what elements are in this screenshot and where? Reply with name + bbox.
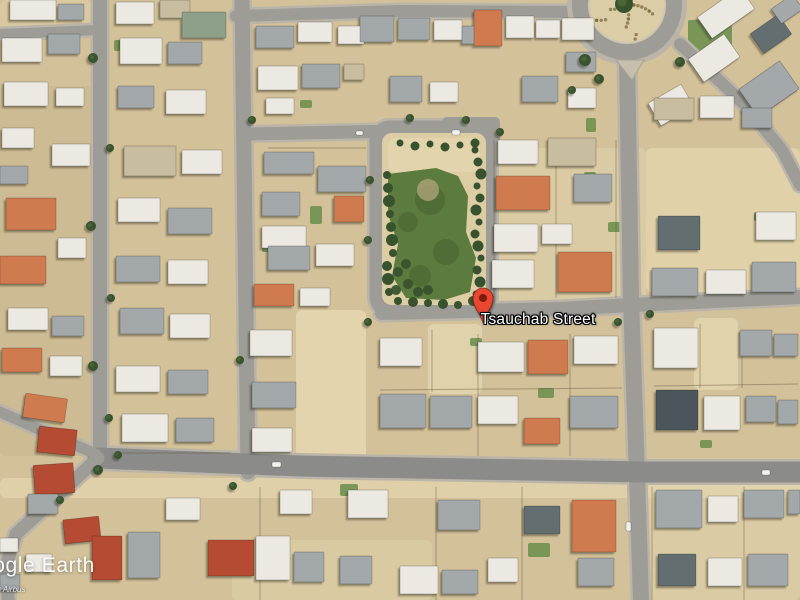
house-roof xyxy=(558,252,612,292)
house-roof xyxy=(294,552,324,582)
house-roof xyxy=(56,88,84,106)
house-roof xyxy=(254,284,294,306)
house-roof xyxy=(360,16,394,42)
house-roof xyxy=(37,426,78,456)
house-roof xyxy=(118,86,154,108)
house-roof xyxy=(704,396,740,430)
house-roof xyxy=(708,496,738,522)
satellite-map[interactable] xyxy=(0,0,800,600)
house-roof xyxy=(348,490,388,518)
house-roof xyxy=(302,64,340,88)
house-roof xyxy=(168,370,208,394)
house-roof xyxy=(748,554,788,586)
house-roof xyxy=(166,90,206,114)
house-roof xyxy=(536,20,560,38)
house-roof xyxy=(168,208,212,234)
house-roof xyxy=(430,396,472,428)
house-roof xyxy=(262,192,300,216)
house-roof xyxy=(2,38,42,62)
house-roof xyxy=(478,342,524,372)
house-roof xyxy=(524,418,560,444)
house-roof xyxy=(654,328,698,368)
house-roof xyxy=(120,38,162,64)
house-roof xyxy=(570,396,618,428)
car xyxy=(762,470,770,475)
house-roof xyxy=(124,146,176,176)
house-roof xyxy=(4,82,48,106)
house-roof xyxy=(700,96,734,118)
house-roof xyxy=(542,224,572,244)
house-roof xyxy=(746,396,776,422)
house-roof xyxy=(708,558,742,586)
house-roof xyxy=(33,463,75,496)
house-roof xyxy=(494,224,538,252)
house-roof xyxy=(390,76,422,102)
house-roof xyxy=(478,396,518,424)
house-roof xyxy=(434,20,462,40)
house-roof xyxy=(182,12,226,38)
house-roof xyxy=(208,540,254,576)
house-roof xyxy=(528,340,568,374)
house-roof xyxy=(788,490,800,514)
house-roof xyxy=(318,166,366,192)
street xyxy=(236,11,568,16)
house-roof xyxy=(742,108,772,128)
house-roof xyxy=(128,532,160,578)
house-roof xyxy=(430,82,458,102)
house-roof xyxy=(116,2,154,24)
house-roof xyxy=(506,16,534,38)
car xyxy=(626,522,631,531)
park xyxy=(382,133,487,309)
house-roof xyxy=(380,338,422,366)
house-roof xyxy=(496,176,550,210)
house-roof xyxy=(400,566,438,594)
house-roof xyxy=(252,382,296,408)
house-roof xyxy=(166,498,200,520)
house-roof xyxy=(182,150,222,174)
house-roof xyxy=(256,26,294,48)
house-roof xyxy=(438,500,480,530)
house-roof xyxy=(118,198,160,222)
car xyxy=(356,131,363,135)
house-roof xyxy=(658,216,700,250)
house-roof xyxy=(280,490,312,514)
house-roof xyxy=(656,490,702,528)
house-roof xyxy=(256,536,290,580)
house-roof xyxy=(562,18,594,40)
house-roof xyxy=(122,414,168,442)
house-roof xyxy=(654,98,694,120)
house-roof xyxy=(574,336,618,364)
house-roof xyxy=(264,152,314,174)
house-roof xyxy=(442,570,478,594)
house-roof xyxy=(8,308,48,330)
house-roof xyxy=(10,0,56,20)
house-roof xyxy=(774,334,798,356)
house-roof xyxy=(316,244,354,266)
house-roof xyxy=(572,500,616,552)
house-roof xyxy=(488,558,518,582)
house-roof xyxy=(578,558,614,586)
house-roof xyxy=(58,4,84,20)
house-roof xyxy=(120,308,164,334)
house-roof xyxy=(268,246,310,270)
house-roof xyxy=(252,428,292,452)
house-roof xyxy=(652,268,698,296)
house-roof xyxy=(92,536,122,580)
house-roof xyxy=(492,260,534,288)
car xyxy=(452,130,460,135)
house-roof xyxy=(258,66,298,90)
house-roof xyxy=(706,270,746,294)
house-roof xyxy=(28,494,58,514)
house-roof xyxy=(168,260,208,284)
street xyxy=(242,0,248,472)
house-roof xyxy=(52,144,90,166)
house-roof xyxy=(0,538,18,552)
house-roof xyxy=(300,288,330,306)
house-roof xyxy=(756,212,796,240)
car xyxy=(272,462,281,467)
house-roof xyxy=(48,34,80,54)
house-roof xyxy=(170,314,210,338)
house-roof xyxy=(334,196,364,222)
house-roof xyxy=(398,18,430,40)
house-roof xyxy=(752,262,796,292)
house-roof xyxy=(298,22,332,42)
house-roof xyxy=(498,140,538,164)
house-roof xyxy=(340,556,372,584)
house-roof xyxy=(262,226,306,248)
house-roof xyxy=(250,330,292,356)
house-roof xyxy=(548,138,596,166)
satellite-view[interactable]: Tsauchab Street Google Earth © Airbus xyxy=(0,0,800,600)
house-roof xyxy=(168,42,202,64)
house-roof xyxy=(658,554,696,586)
house-roof xyxy=(116,256,160,282)
house-roof xyxy=(50,356,82,376)
house-roof xyxy=(0,256,46,284)
house-roof xyxy=(52,316,84,336)
house-roof xyxy=(6,198,56,230)
house-roof xyxy=(116,366,160,392)
house-roof xyxy=(58,238,86,258)
street xyxy=(0,30,98,34)
house-roof xyxy=(380,394,426,428)
house-roof xyxy=(2,128,34,148)
house-roof xyxy=(744,490,784,518)
house-roof xyxy=(778,400,798,424)
house-roof xyxy=(474,10,502,46)
house-roof xyxy=(2,348,42,372)
house-roof xyxy=(522,76,558,102)
house-roof xyxy=(266,98,294,114)
house-roof xyxy=(656,390,698,430)
house-roof xyxy=(0,166,28,184)
house-roof xyxy=(344,64,364,80)
house-roof xyxy=(524,506,560,534)
house-roof xyxy=(0,574,20,590)
house-roof xyxy=(26,554,52,572)
house-roof xyxy=(574,174,612,202)
house-roof xyxy=(740,330,772,356)
house-roof xyxy=(176,418,214,442)
